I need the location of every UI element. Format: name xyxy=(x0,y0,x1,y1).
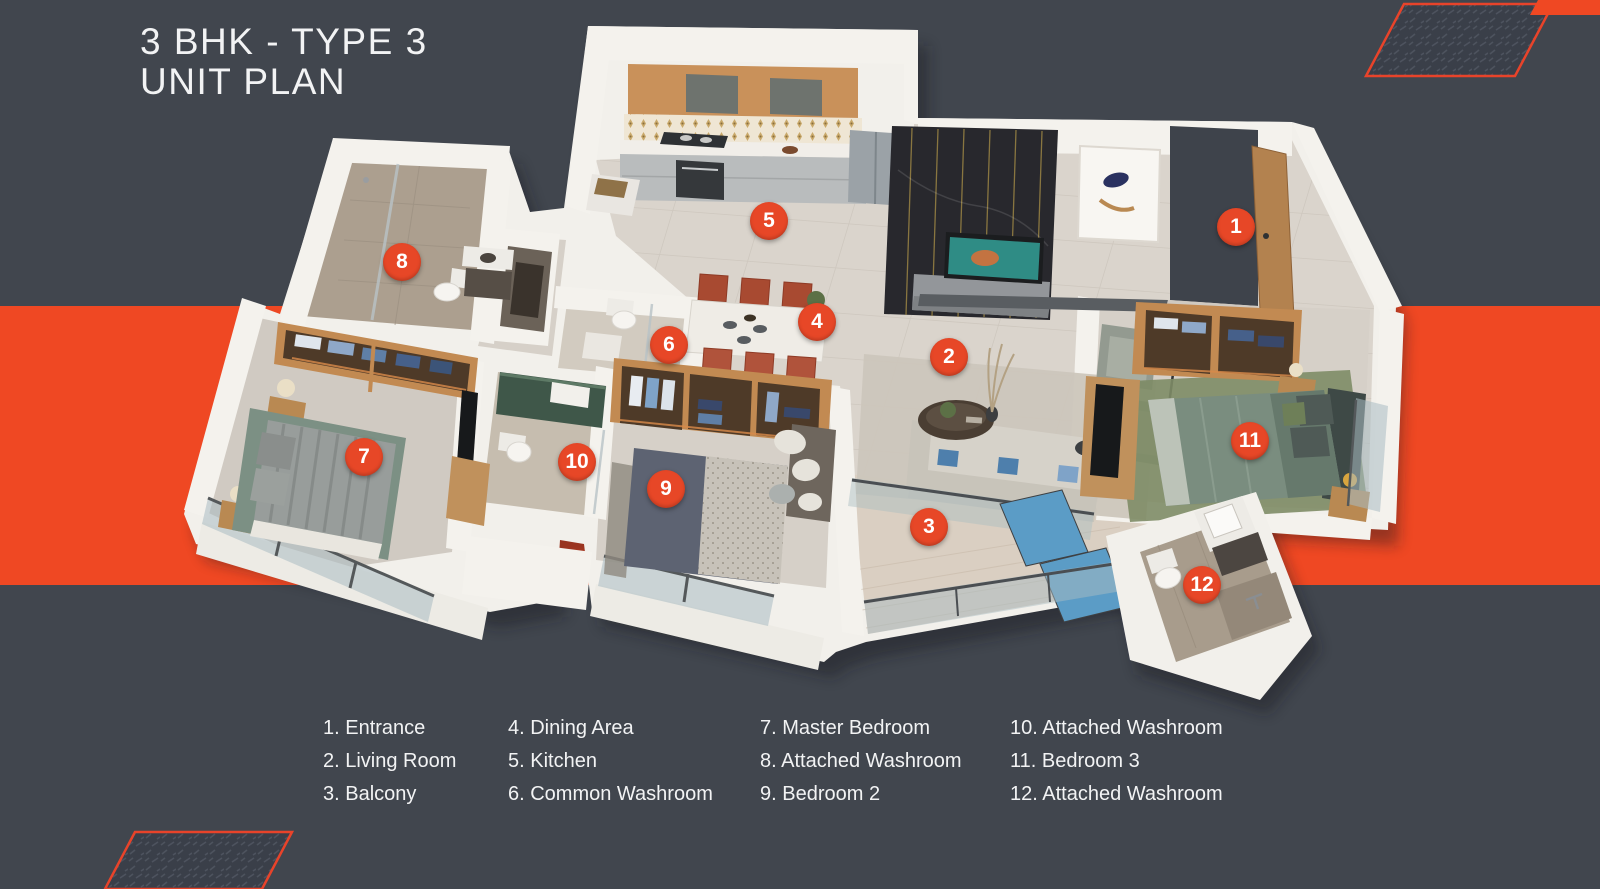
room-marker-5: 5 xyxy=(750,202,788,240)
room-marker-9: 9 xyxy=(647,470,685,508)
room-marker-7: 7 xyxy=(345,438,383,476)
room-marker-2: 2 xyxy=(930,338,968,376)
room-marker-6: 6 xyxy=(650,326,688,364)
unit-plan-poster: 3 BHK - TYPE 3 UNIT PLAN 1. Entrance2. L… xyxy=(0,0,1600,889)
room-marker-11: 11 xyxy=(1231,422,1269,460)
room-marker-10: 10 xyxy=(558,443,596,481)
room-marker-3: 3 xyxy=(910,508,948,546)
room-marker-8: 8 xyxy=(383,243,421,281)
room-marker-12: 12 xyxy=(1183,566,1221,604)
room-marker-1: 1 xyxy=(1217,208,1255,246)
room-marker-4: 4 xyxy=(798,303,836,341)
room-markers: 123456789101112 xyxy=(0,0,1600,889)
